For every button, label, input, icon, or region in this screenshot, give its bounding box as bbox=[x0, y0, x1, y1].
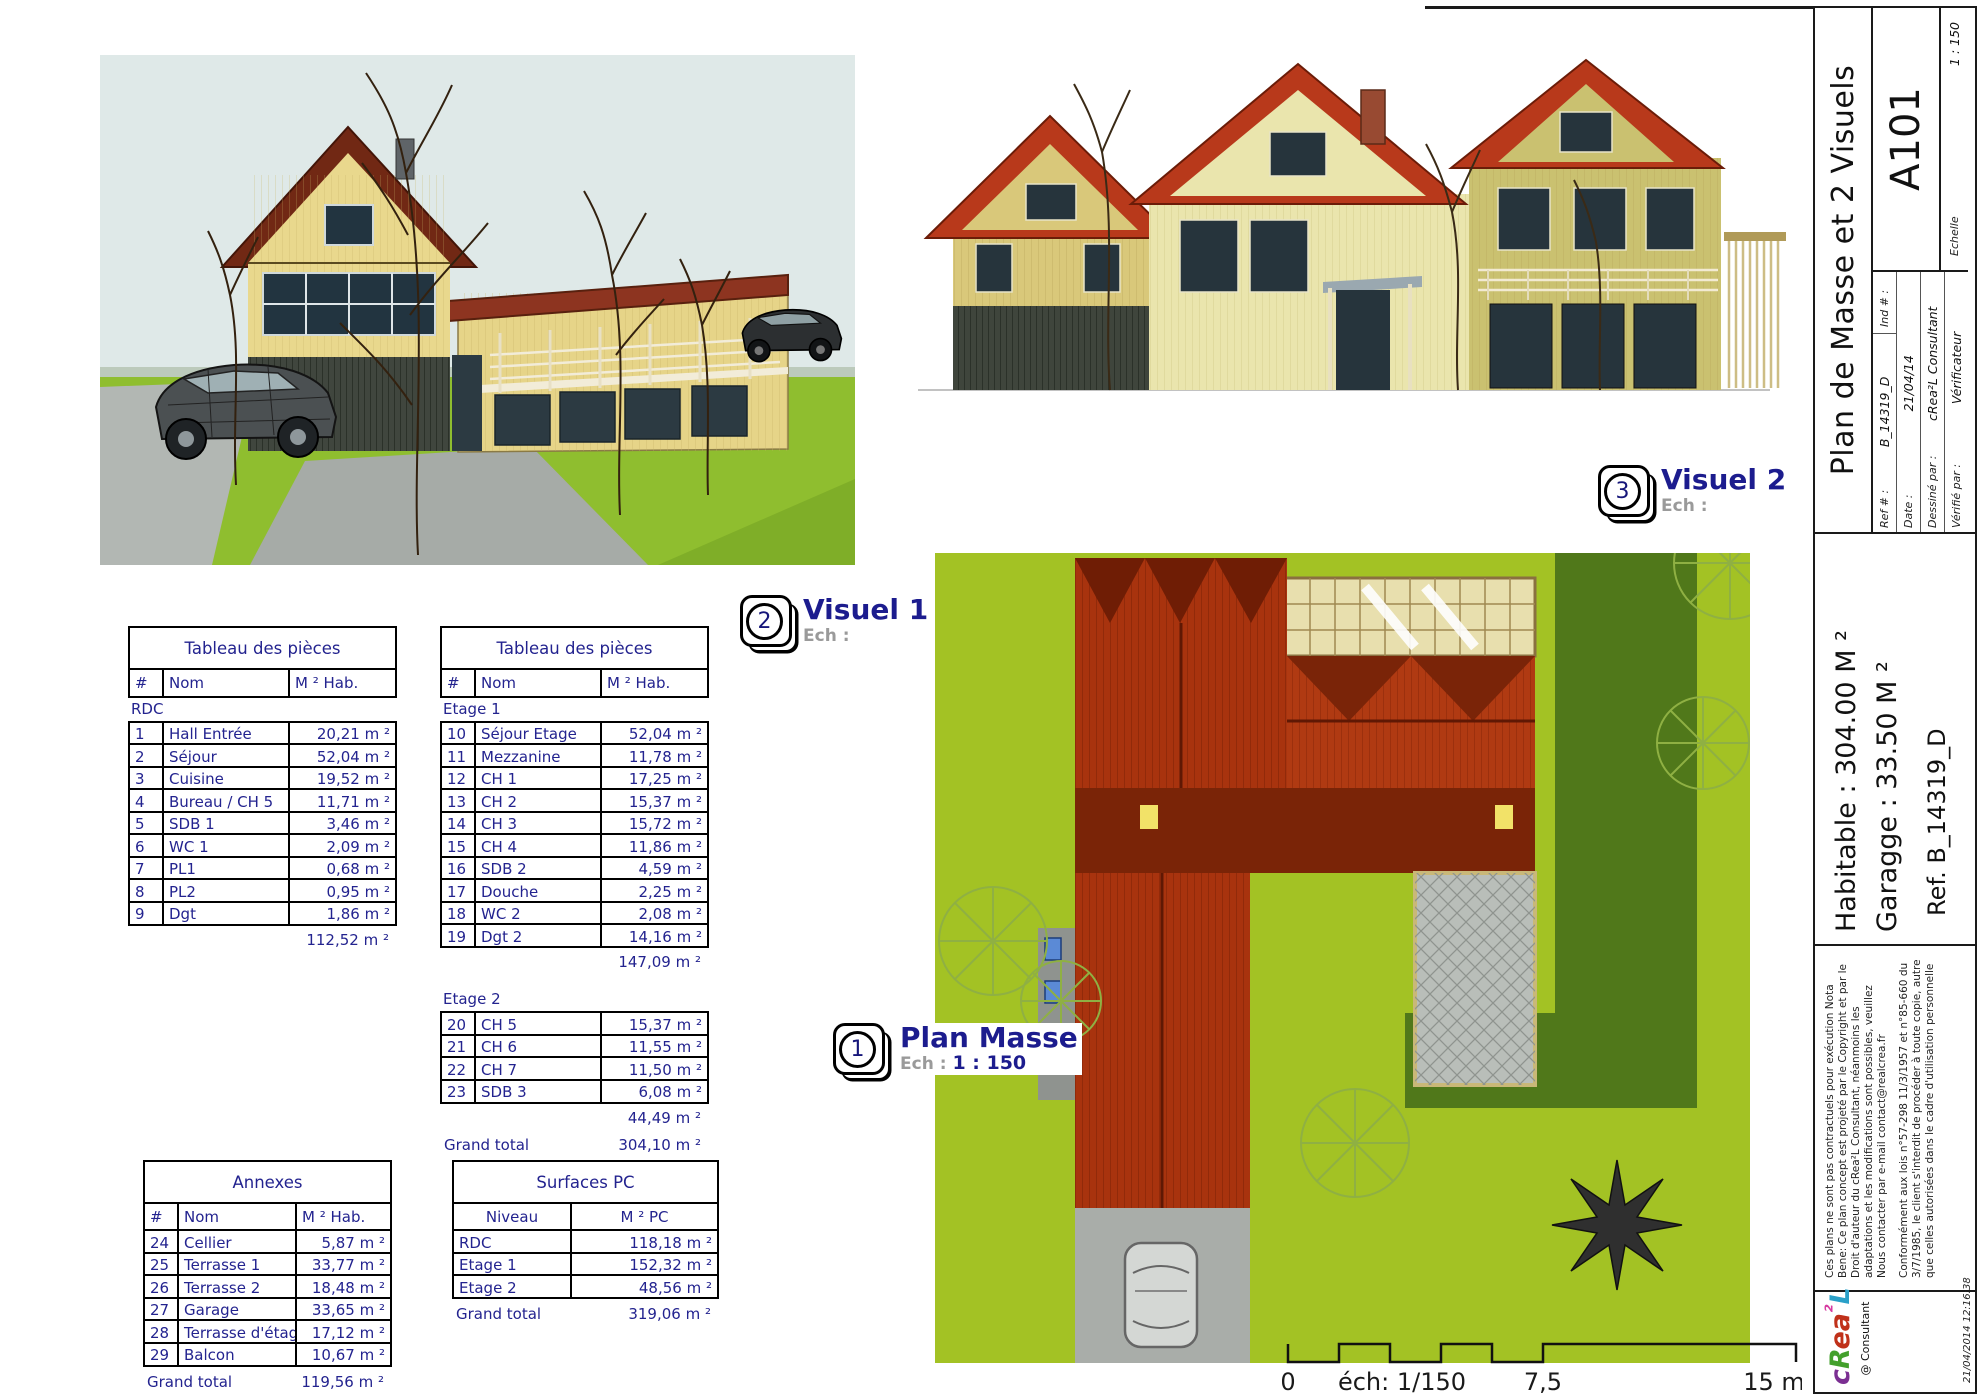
column-header: Nom bbox=[164, 670, 290, 696]
table-cell: 28 bbox=[145, 1321, 179, 1342]
garage-area: Garagge : 33.50 M ² bbox=[1872, 534, 1903, 932]
table-row: 9Dgt1,86 m ² bbox=[128, 901, 397, 926]
table-row: 14CH 315,72 m ² bbox=[440, 811, 709, 836]
plan-masse-drawing bbox=[935, 553, 1750, 1363]
table-cell: CH 1 bbox=[476, 768, 602, 789]
table-cell: 52,04 m ² bbox=[290, 745, 395, 766]
group-label-text: Etage 1 bbox=[443, 700, 501, 718]
table-row: 18WC 22,08 m ² bbox=[440, 901, 709, 926]
logo-letter: a bbox=[1825, 1313, 1856, 1331]
table-cell: 23 bbox=[442, 1081, 476, 1102]
table-cell: 11,78 m ² bbox=[602, 745, 707, 766]
table-row: 5SDB 13,46 m ² bbox=[128, 811, 397, 836]
table-cell: 29 bbox=[145, 1344, 179, 1365]
visual-2-svg bbox=[898, 32, 1790, 460]
table-cell: 26 bbox=[145, 1276, 179, 1297]
column-header: M ² Hab. bbox=[297, 1204, 390, 1230]
table-cell: 19 bbox=[442, 925, 476, 946]
grand-total: Grand total119,56 m ² bbox=[143, 1367, 392, 1391]
table-row: 17Douche2,25 m ² bbox=[440, 878, 709, 903]
table-title: Tableau des pièces bbox=[128, 626, 397, 670]
roof-window bbox=[1140, 805, 1158, 829]
group-label-text: Etage 2 bbox=[443, 990, 501, 1008]
table-title: Annexes bbox=[143, 1160, 392, 1204]
table-cell: 12 bbox=[442, 768, 476, 789]
table-row: 10Séjour Etage52,04 m ² bbox=[440, 721, 709, 746]
table-cell: Mezzanine bbox=[476, 745, 602, 766]
table-cell: 17,12 m ² bbox=[297, 1321, 390, 1342]
table-cell: Dgt 2 bbox=[476, 925, 602, 946]
table-cell: 14,16 m ² bbox=[602, 925, 707, 946]
entry-door bbox=[452, 355, 482, 451]
table-row: 13CH 215,37 m ² bbox=[440, 788, 709, 813]
entry-door bbox=[1336, 290, 1390, 390]
visual-2-rendering bbox=[898, 32, 1790, 460]
table-cell: 20,21 m ² bbox=[290, 723, 395, 744]
ind-label: Ind # : bbox=[1873, 276, 1896, 334]
table-cell: 24 bbox=[145, 1231, 179, 1252]
table-cell: CH 5 bbox=[476, 1013, 602, 1034]
table-cell: 9 bbox=[130, 903, 164, 924]
table-cell: 0,68 m ² bbox=[290, 858, 395, 879]
checked-by-label: Vérifié par : bbox=[1950, 464, 1963, 528]
table-cell: WC 2 bbox=[476, 903, 602, 924]
column-header: Niveau bbox=[454, 1204, 572, 1230]
table-cell: 2,25 m ² bbox=[602, 880, 707, 901]
table-cell: 48,56 m ² bbox=[572, 1276, 717, 1297]
group-label: Etage 1 bbox=[440, 698, 709, 721]
table-row: RDC118,18 m ² bbox=[452, 1229, 719, 1254]
sheet-number: A101 bbox=[1873, 8, 1941, 270]
group-label: Etage 2 bbox=[440, 988, 709, 1011]
titleblock-fields: Ref # : B_14319_D Ind # : Date : 21/04/1… bbox=[1873, 270, 1968, 532]
table-cell: SDB 2 bbox=[476, 858, 602, 879]
logo-letter: e bbox=[1825, 1331, 1856, 1349]
table-cell: PL1 bbox=[164, 858, 290, 879]
table-header-row: #NomM ² Hab. bbox=[128, 668, 397, 698]
table-cell: 19,52 m ² bbox=[290, 768, 395, 789]
grand-total-value: 319,06 m ² bbox=[628, 1305, 711, 1323]
table-title-text: Tableau des pièces bbox=[185, 639, 341, 658]
table-header-row: #NomM ² Hab. bbox=[440, 668, 709, 698]
table-cell: 22 bbox=[442, 1058, 476, 1079]
scale-mid: 7,5 bbox=[1524, 1368, 1562, 1396]
table-cell: SDB 1 bbox=[164, 813, 290, 834]
table-row: 12CH 117,25 m ² bbox=[440, 766, 709, 791]
table-cell: 20 bbox=[442, 1013, 476, 1034]
table-cell: Terrasse d'étage bbox=[179, 1321, 297, 1342]
secondary-roof bbox=[1287, 656, 1535, 788]
table-cell: Terrasse 1 bbox=[179, 1254, 297, 1275]
main-roof bbox=[1075, 558, 1287, 788]
table-row: Etage 1152,32 m ² bbox=[452, 1252, 719, 1277]
table-cell: Hall Entrée bbox=[164, 723, 290, 744]
table-row: 16SDB 24,59 m ² bbox=[440, 856, 709, 881]
grand-total-value: 119,56 m ² bbox=[301, 1373, 384, 1391]
titleblock-legal-section: Ces plans ne sont pas contractuels pour … bbox=[1815, 946, 1975, 1292]
table-cell: Cuisine bbox=[164, 768, 290, 789]
car bbox=[742, 310, 841, 362]
table-row: 1Hall Entrée20,21 m ² bbox=[128, 721, 397, 746]
scale-label: Ech : bbox=[803, 626, 850, 646]
detail-callout-icon: 1 bbox=[833, 1023, 885, 1075]
table-cell: 2,08 m ² bbox=[602, 903, 707, 924]
table-cell: 4 bbox=[130, 790, 164, 811]
table-row: 7PL10,68 m ² bbox=[128, 856, 397, 881]
callout-plan-masse: 1 Plan Masse Ech : 1 : 150 bbox=[833, 1023, 1082, 1075]
callout-number: 2 bbox=[746, 603, 783, 640]
scale-value: 1 : 150 bbox=[952, 1052, 1026, 1074]
table-cell: RDC bbox=[454, 1231, 572, 1252]
table-cell: 11,50 m ² bbox=[602, 1058, 707, 1079]
scale-note: éch: 1/150 bbox=[1338, 1368, 1466, 1396]
plan-masse-svg bbox=[935, 553, 1750, 1363]
table-cell: 11,86 m ² bbox=[602, 835, 707, 856]
table-cell: Cellier bbox=[179, 1231, 297, 1252]
table-row: 11Mezzanine11,78 m ² bbox=[440, 743, 709, 768]
column-header: # bbox=[130, 670, 164, 696]
table-cell: CH 7 bbox=[476, 1058, 602, 1079]
table-cell: 18,48 m ² bbox=[297, 1276, 390, 1297]
detail-callout-icon: 2 bbox=[740, 595, 792, 647]
scale-label: Ech : bbox=[1661, 496, 1708, 516]
consultant-label: @ Consultant bbox=[1859, 1292, 1872, 1385]
car-top-view bbox=[1125, 1243, 1197, 1347]
scale-bar: 0 éch: 1/150 7,5 15 m bbox=[1282, 1322, 1802, 1397]
table-cell: 10 bbox=[442, 723, 476, 744]
table-cell: 1,86 m ² bbox=[290, 903, 395, 924]
view-title: Visuel 1 bbox=[803, 595, 928, 625]
callout-visuel-2: 3 Visuel 2 Ech : bbox=[1598, 465, 1786, 517]
table-cell: CH 6 bbox=[476, 1036, 602, 1057]
table-cell: CH 3 bbox=[476, 813, 602, 834]
echelle-label: Echelle bbox=[1948, 216, 1961, 256]
table-cell: 16 bbox=[442, 858, 476, 879]
column-header: M ² Hab. bbox=[290, 670, 395, 696]
table-row: 19Dgt 214,16 m ² bbox=[440, 923, 709, 948]
titleblock-header-section: Plan de Masse et 2 Visuels Ref # : B_143… bbox=[1815, 8, 1975, 534]
table-row: 4Bureau / CH 511,71 m ² bbox=[128, 788, 397, 813]
table-cell: 25 bbox=[145, 1254, 179, 1275]
print-timestamp: 21/04/2014 12:16:38 bbox=[1962, 1277, 1973, 1383]
table-row: 2Séjour52,04 m ² bbox=[128, 743, 397, 768]
table-cell: 15 bbox=[442, 835, 476, 856]
table-cell: 13 bbox=[442, 790, 476, 811]
table-row: 8PL20,95 m ² bbox=[128, 878, 397, 903]
table-cell: 17,25 m ² bbox=[602, 768, 707, 789]
table-title-text: Surfaces PC bbox=[536, 1173, 634, 1192]
grand-total: Grand total304,10 m ² bbox=[440, 1130, 709, 1154]
table-row: 28Terrasse d'étage17,12 m ² bbox=[143, 1319, 392, 1344]
table-row: 26Terrasse 218,48 m ² bbox=[143, 1274, 392, 1299]
grand-total-label: Grand total bbox=[456, 1305, 541, 1323]
table-cell: 0,95 m ² bbox=[290, 880, 395, 901]
table-cell: 15,72 m ² bbox=[602, 813, 707, 834]
tree bbox=[1657, 697, 1749, 789]
group-subtotal: 147,09 m ² bbox=[440, 948, 709, 974]
table-cell: Séjour bbox=[164, 745, 290, 766]
table-row: 29Balcon10,67 m ² bbox=[143, 1342, 392, 1367]
table-row: 23SDB 36,08 m ² bbox=[440, 1079, 709, 1104]
table-cell: 7 bbox=[130, 858, 164, 879]
visual-2-car bbox=[738, 292, 848, 372]
group-subtotal-value: 147,09 m ² bbox=[618, 953, 701, 971]
date-value: 21/04/14 bbox=[1901, 276, 1916, 491]
tree bbox=[939, 887, 1047, 995]
table-cell: 11,55 m ² bbox=[602, 1036, 707, 1057]
table-cell: 5 bbox=[130, 813, 164, 834]
table-cell: 27 bbox=[145, 1299, 179, 1320]
legal-note-2: Conformément aux lois n°57-298 11/3/1957… bbox=[1898, 958, 1937, 1278]
table-annexes: Annexes#NomM ² Hab.24Cellier5,87 m ²25Te… bbox=[143, 1160, 392, 1391]
table-row: 20CH 515,37 m ² bbox=[440, 1011, 709, 1036]
north-star bbox=[1552, 1160, 1682, 1290]
scale-end: 15 m bbox=[1743, 1368, 1802, 1396]
table-row: 15CH 411,86 m ² bbox=[440, 833, 709, 858]
table-cell: 152,32 m ² bbox=[572, 1254, 717, 1275]
table-cell: 11 bbox=[442, 745, 476, 766]
table-cell: Bureau / CH 5 bbox=[164, 790, 290, 811]
table-cell: 8 bbox=[130, 880, 164, 901]
titleblock-logo-section: cRea²L @ Consultant 21/04/2014 12:16:38 bbox=[1815, 1292, 1975, 1387]
table-row: 22CH 711,50 m ² bbox=[440, 1056, 709, 1081]
titleblock: Plan de Masse et 2 Visuels Ref # : B_143… bbox=[1813, 6, 1977, 1394]
table-cell: 33,77 m ² bbox=[297, 1254, 390, 1275]
group-label-text: RDC bbox=[131, 700, 163, 718]
detail-callout-icon: 3 bbox=[1598, 465, 1650, 517]
column-header: Nom bbox=[476, 670, 602, 696]
table-title: Tableau des pièces bbox=[440, 626, 709, 670]
table-cell: 1 bbox=[130, 723, 164, 744]
table-title: Surfaces PC bbox=[452, 1160, 719, 1204]
grand-total-label: Grand total bbox=[147, 1373, 232, 1391]
sheet-border-top bbox=[1425, 6, 1815, 9]
table-cell: 17 bbox=[442, 880, 476, 901]
table-cell: 3 bbox=[130, 768, 164, 789]
column-header: M ² Hab. bbox=[602, 670, 707, 696]
wing-roof bbox=[1075, 873, 1250, 1208]
table-surfaces-pc: Surfaces PCNiveauM ² PCRDC118,18 m ²Etag… bbox=[452, 1160, 719, 1323]
chimney bbox=[1361, 90, 1385, 144]
visual-2-car-svg bbox=[738, 292, 848, 372]
table-header-row: #NomM ² Hab. bbox=[143, 1202, 392, 1232]
table-row: 24Cellier5,87 m ² bbox=[143, 1229, 392, 1254]
table-cell: Douche bbox=[476, 880, 602, 901]
table-row: 21CH 611,55 m ² bbox=[440, 1034, 709, 1059]
ref-label: Ref # : bbox=[1878, 490, 1891, 528]
table-cell: 4,59 m ² bbox=[602, 858, 707, 879]
column-header: M ² PC bbox=[572, 1204, 717, 1230]
table-cell: Etage 1 bbox=[454, 1254, 572, 1275]
table-pieces-etages: Tableau des pièces#NomM ² Hab.Etage 110S… bbox=[440, 626, 709, 1154]
group-subtotal: 112,52 m ² bbox=[128, 926, 397, 952]
table-cell: 118,18 m ² bbox=[572, 1231, 717, 1252]
table-cell: 2 bbox=[130, 745, 164, 766]
drawn-by-value: cRea²L Consultant bbox=[1925, 276, 1940, 452]
group-label: RDC bbox=[128, 698, 397, 721]
callout-number: 3 bbox=[1604, 473, 1641, 510]
table-cell: 6,08 m ² bbox=[602, 1081, 707, 1102]
group-subtotal-value: 112,52 m ² bbox=[306, 931, 389, 949]
table-row: 25Terrasse 133,77 m ² bbox=[143, 1252, 392, 1277]
terrace-pergola-roof bbox=[1285, 578, 1535, 656]
group-subtotal-value: 44,49 m ² bbox=[628, 1109, 701, 1127]
table-cell: 33,65 m ² bbox=[297, 1299, 390, 1320]
table-row: 3Cuisine19,52 m ² bbox=[128, 766, 397, 791]
table-row: Etage 248,56 m ² bbox=[452, 1274, 719, 1299]
drawn-by-label: Dessiné par : bbox=[1926, 456, 1939, 528]
table-cell: 6 bbox=[130, 835, 164, 856]
table-cell: Terrasse 2 bbox=[179, 1276, 297, 1297]
view-title: Visuel 2 bbox=[1661, 465, 1786, 495]
table-cell: Etage 2 bbox=[454, 1276, 572, 1297]
table-cell: Garage bbox=[179, 1299, 297, 1320]
callout-number: 1 bbox=[839, 1031, 876, 1068]
table-row: 6WC 12,09 m ² bbox=[128, 833, 397, 858]
ref-value: B_14319_D bbox=[1877, 338, 1892, 486]
scale-bar-svg: 0 éch: 1/150 7,5 15 m bbox=[1282, 1322, 1802, 1397]
group-subtotal: 44,49 m ² bbox=[440, 1104, 709, 1130]
roof-band bbox=[1075, 788, 1535, 873]
date-label: Date : bbox=[1902, 495, 1915, 529]
driveway-apron bbox=[1075, 1208, 1250, 1363]
table-cell: 21 bbox=[442, 1036, 476, 1057]
legal-note-1: Ces plans ne sont pas contractuels pour … bbox=[1824, 958, 1889, 1278]
crea2l-logo: cRea²L bbox=[1825, 1287, 1856, 1385]
table-cell: 14 bbox=[442, 813, 476, 834]
table-cell: CH 4 bbox=[476, 835, 602, 856]
terrace-hatched bbox=[1415, 873, 1535, 1085]
callout-visuel-1: 2 Visuel 1 Ech : bbox=[740, 595, 928, 647]
table-cell: CH 2 bbox=[476, 790, 602, 811]
table-cell: 10,67 m ² bbox=[297, 1344, 390, 1365]
view-title: Plan Masse bbox=[896, 1023, 1082, 1053]
echelle-value: 1 : 150 bbox=[1947, 22, 1962, 66]
logo-letter: L bbox=[1825, 1287, 1856, 1304]
table-cell: 2,09 m ² bbox=[290, 835, 395, 856]
table-cell: Séjour Etage bbox=[476, 723, 602, 744]
column-header: # bbox=[145, 1204, 179, 1230]
column-header: # bbox=[442, 670, 476, 696]
table-cell: 5,87 m ² bbox=[297, 1231, 390, 1252]
table-cell: 18 bbox=[442, 903, 476, 924]
grand-total-label: Grand total bbox=[444, 1136, 529, 1154]
habitable-area: Habitable : 304.00 M ² bbox=[1831, 534, 1862, 932]
logo-letter: ² bbox=[1821, 1304, 1844, 1313]
titleblock-areas-section: Habitable : 304.00 M ² Garagge : 33.50 M… bbox=[1815, 534, 1975, 946]
table-cell: 15,37 m ² bbox=[602, 1013, 707, 1034]
table-cell: 3,46 m ² bbox=[290, 813, 395, 834]
table-cell: 52,04 m ² bbox=[602, 723, 707, 744]
table-cell: SDB 3 bbox=[476, 1081, 602, 1102]
reference-number: Ref. B_14319_D bbox=[1923, 534, 1951, 932]
table-cell: WC 1 bbox=[164, 835, 290, 856]
scale-zero: 0 bbox=[1282, 1368, 1296, 1396]
table-cell: Balcon bbox=[179, 1344, 297, 1365]
roof-window bbox=[1495, 805, 1513, 829]
grand-total: Grand total319,06 m ² bbox=[452, 1299, 719, 1323]
checked-by-value: Vérificateur bbox=[1949, 276, 1964, 460]
table-title-text: Annexes bbox=[232, 1173, 302, 1192]
table-header-row: NiveauM ² PC bbox=[452, 1202, 719, 1232]
table-cell: 11,71 m ² bbox=[290, 790, 395, 811]
table-row: 27Garage33,65 m ² bbox=[143, 1297, 392, 1322]
table-cell: 15,37 m ² bbox=[602, 790, 707, 811]
table-cell: PL2 bbox=[164, 880, 290, 901]
table-title-text: Tableau des pièces bbox=[497, 639, 653, 658]
house-right-wing bbox=[448, 275, 788, 452]
sheet-title: Plan de Masse et 2 Visuels bbox=[1815, 8, 1873, 532]
column-header: Nom bbox=[179, 1204, 297, 1230]
table-cell: Dgt bbox=[164, 903, 290, 924]
grand-total-value: 304,10 m ² bbox=[618, 1136, 701, 1154]
table-pieces-rdc: Tableau des pièces#NomM ² Hab.RDC1Hall E… bbox=[128, 626, 397, 952]
scale-label: Ech : bbox=[900, 1054, 947, 1074]
logo-letter: R bbox=[1825, 1350, 1856, 1369]
tree bbox=[1301, 1089, 1409, 1197]
logo-letter: c bbox=[1825, 1369, 1856, 1385]
